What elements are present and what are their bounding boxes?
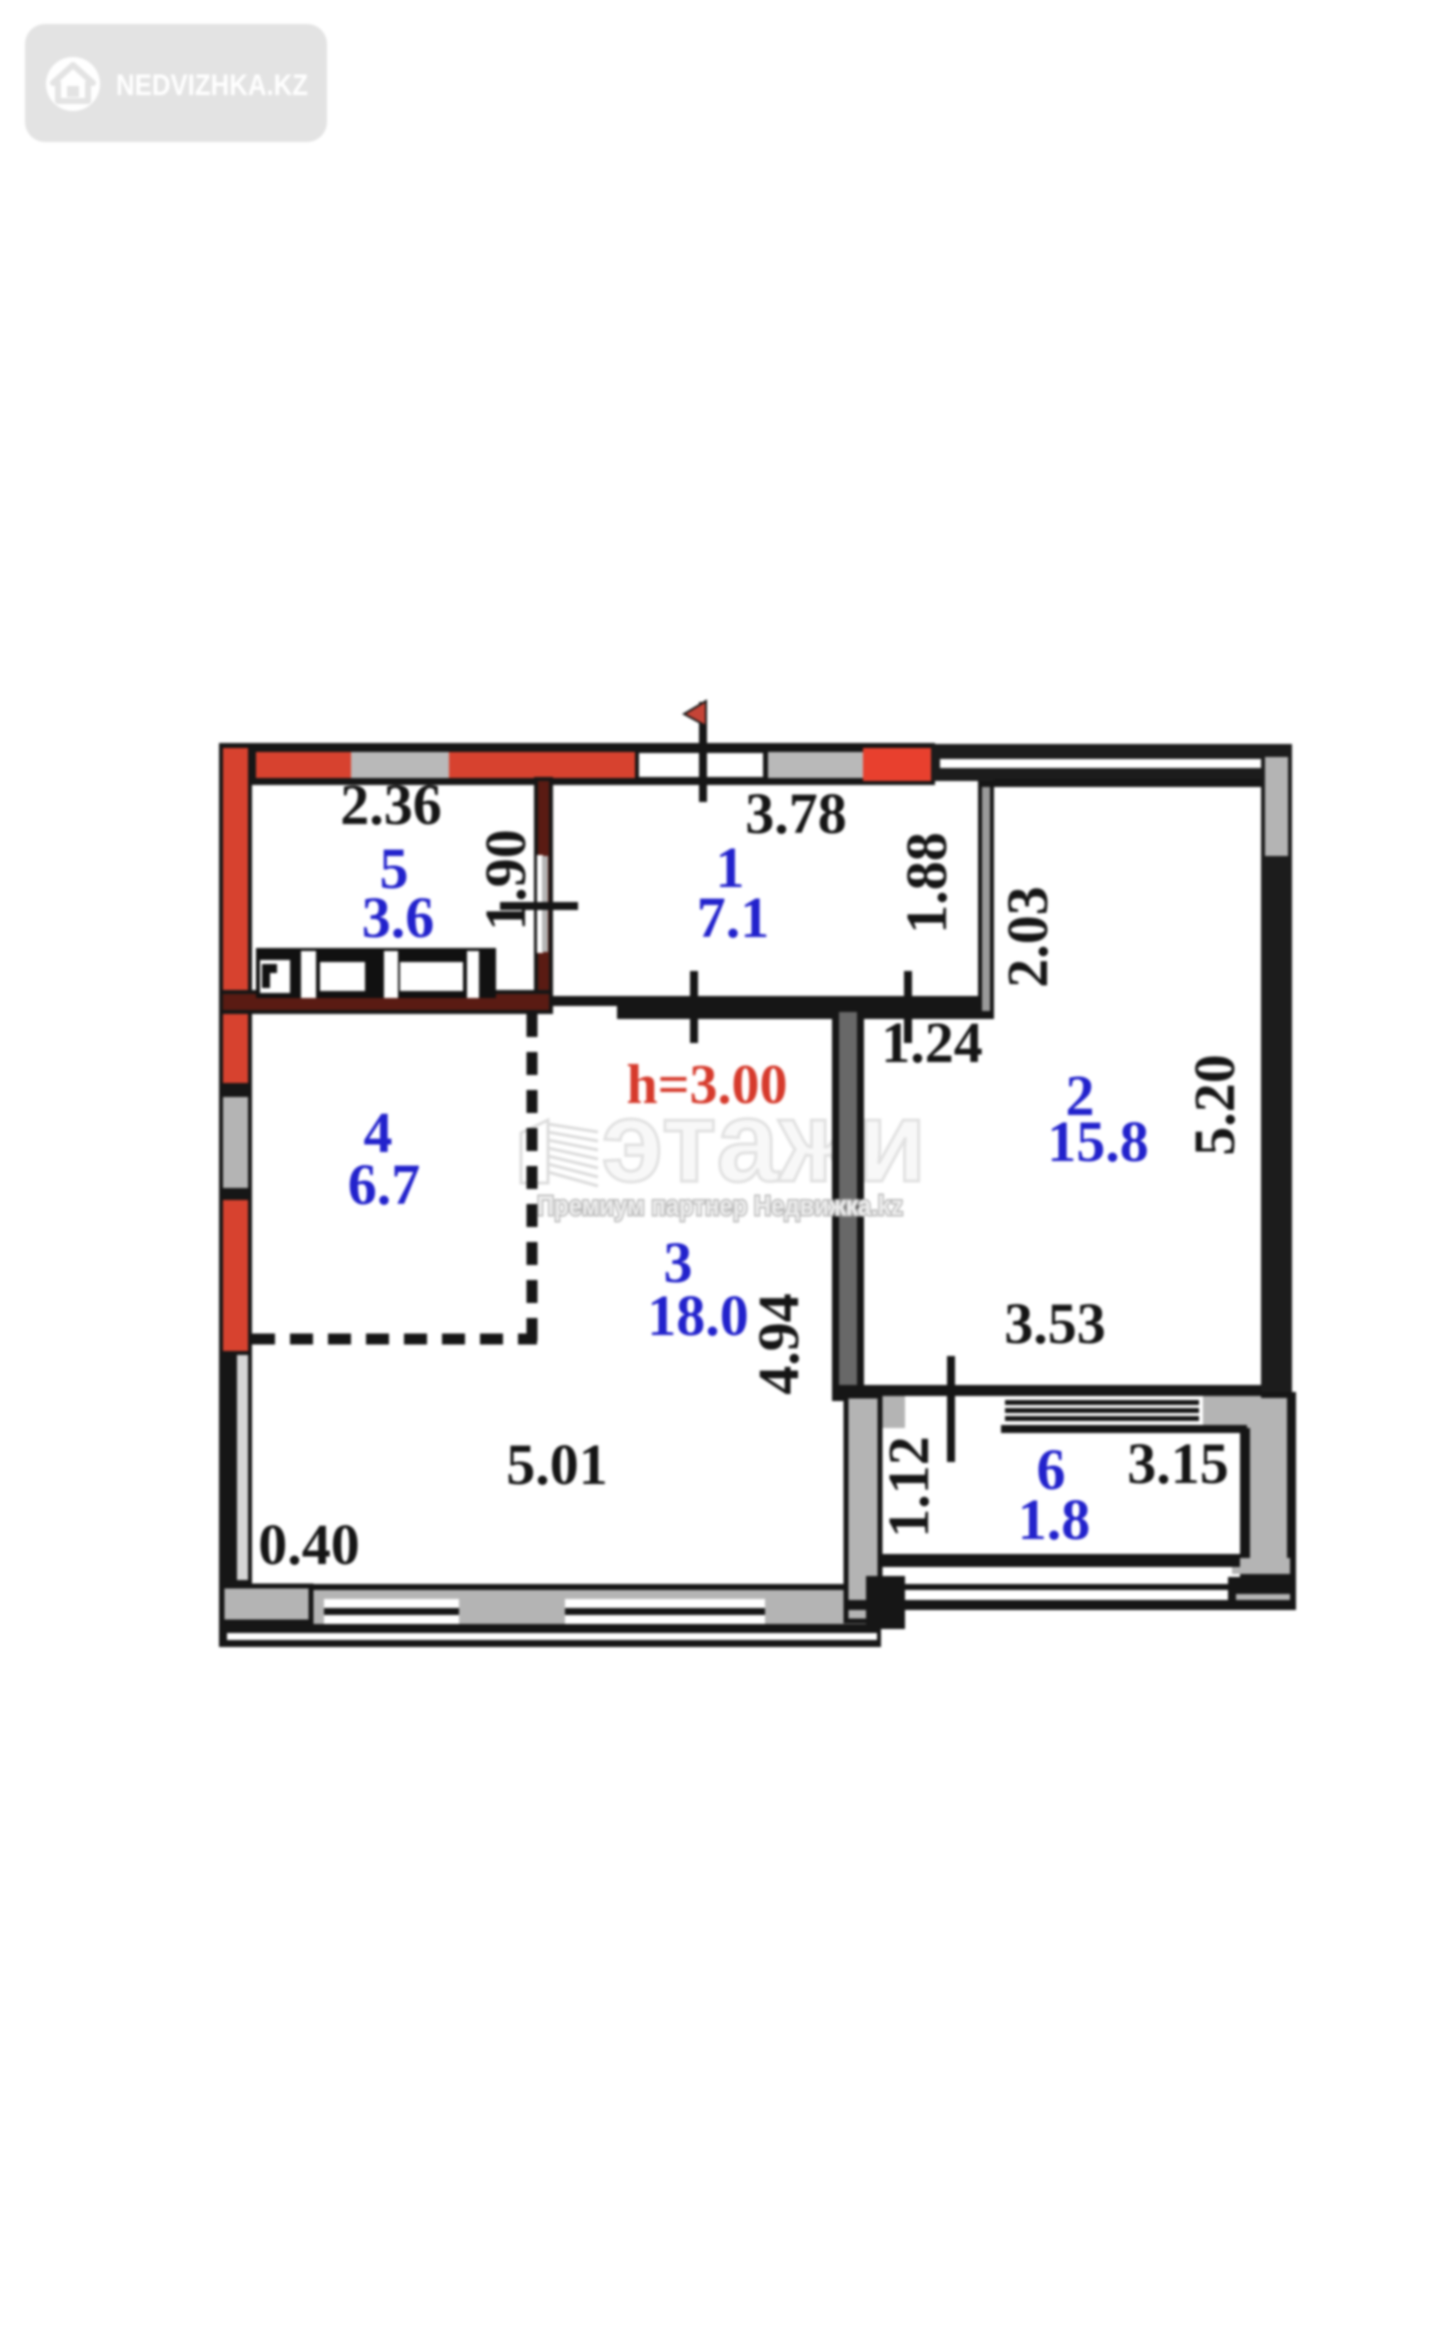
svg-text:3.15: 3.15 bbox=[1127, 1431, 1229, 1496]
svg-text:1.24: 1.24 bbox=[881, 1010, 983, 1075]
svg-text:1.8: 1.8 bbox=[1018, 1487, 1091, 1552]
svg-text:2.03: 2.03 bbox=[995, 886, 1060, 988]
svg-text:0.40: 0.40 bbox=[258, 1512, 360, 1577]
svg-text:1.90: 1.90 bbox=[473, 829, 538, 931]
svg-text:6.7: 6.7 bbox=[348, 1152, 421, 1217]
svg-text:5.01: 5.01 bbox=[506, 1432, 608, 1497]
svg-text:4.94: 4.94 bbox=[746, 1293, 811, 1395]
svg-text:3.78: 3.78 bbox=[745, 781, 847, 846]
svg-text:18.0: 18.0 bbox=[647, 1283, 749, 1348]
svg-text:3.53: 3.53 bbox=[1004, 1291, 1106, 1356]
svg-text:1.12: 1.12 bbox=[876, 1436, 941, 1538]
svg-text:15.8: 15.8 bbox=[1047, 1109, 1149, 1174]
svg-text:2.36: 2.36 bbox=[340, 772, 442, 837]
svg-text:1.88: 1.88 bbox=[894, 832, 959, 934]
svg-text:7.1: 7.1 bbox=[697, 885, 770, 950]
svg-text:5.20: 5.20 bbox=[1182, 1054, 1247, 1156]
svg-text:h=3.00: h=3.00 bbox=[626, 1054, 787, 1116]
svg-text:3.6: 3.6 bbox=[362, 885, 435, 950]
svg-text:NEDVIZHKA.KZ: NEDVIZHKA.KZ bbox=[116, 69, 308, 102]
svg-text:Премиум партнер Недвижка.kz: Премиум партнер Недвижка.kz bbox=[537, 1190, 903, 1221]
